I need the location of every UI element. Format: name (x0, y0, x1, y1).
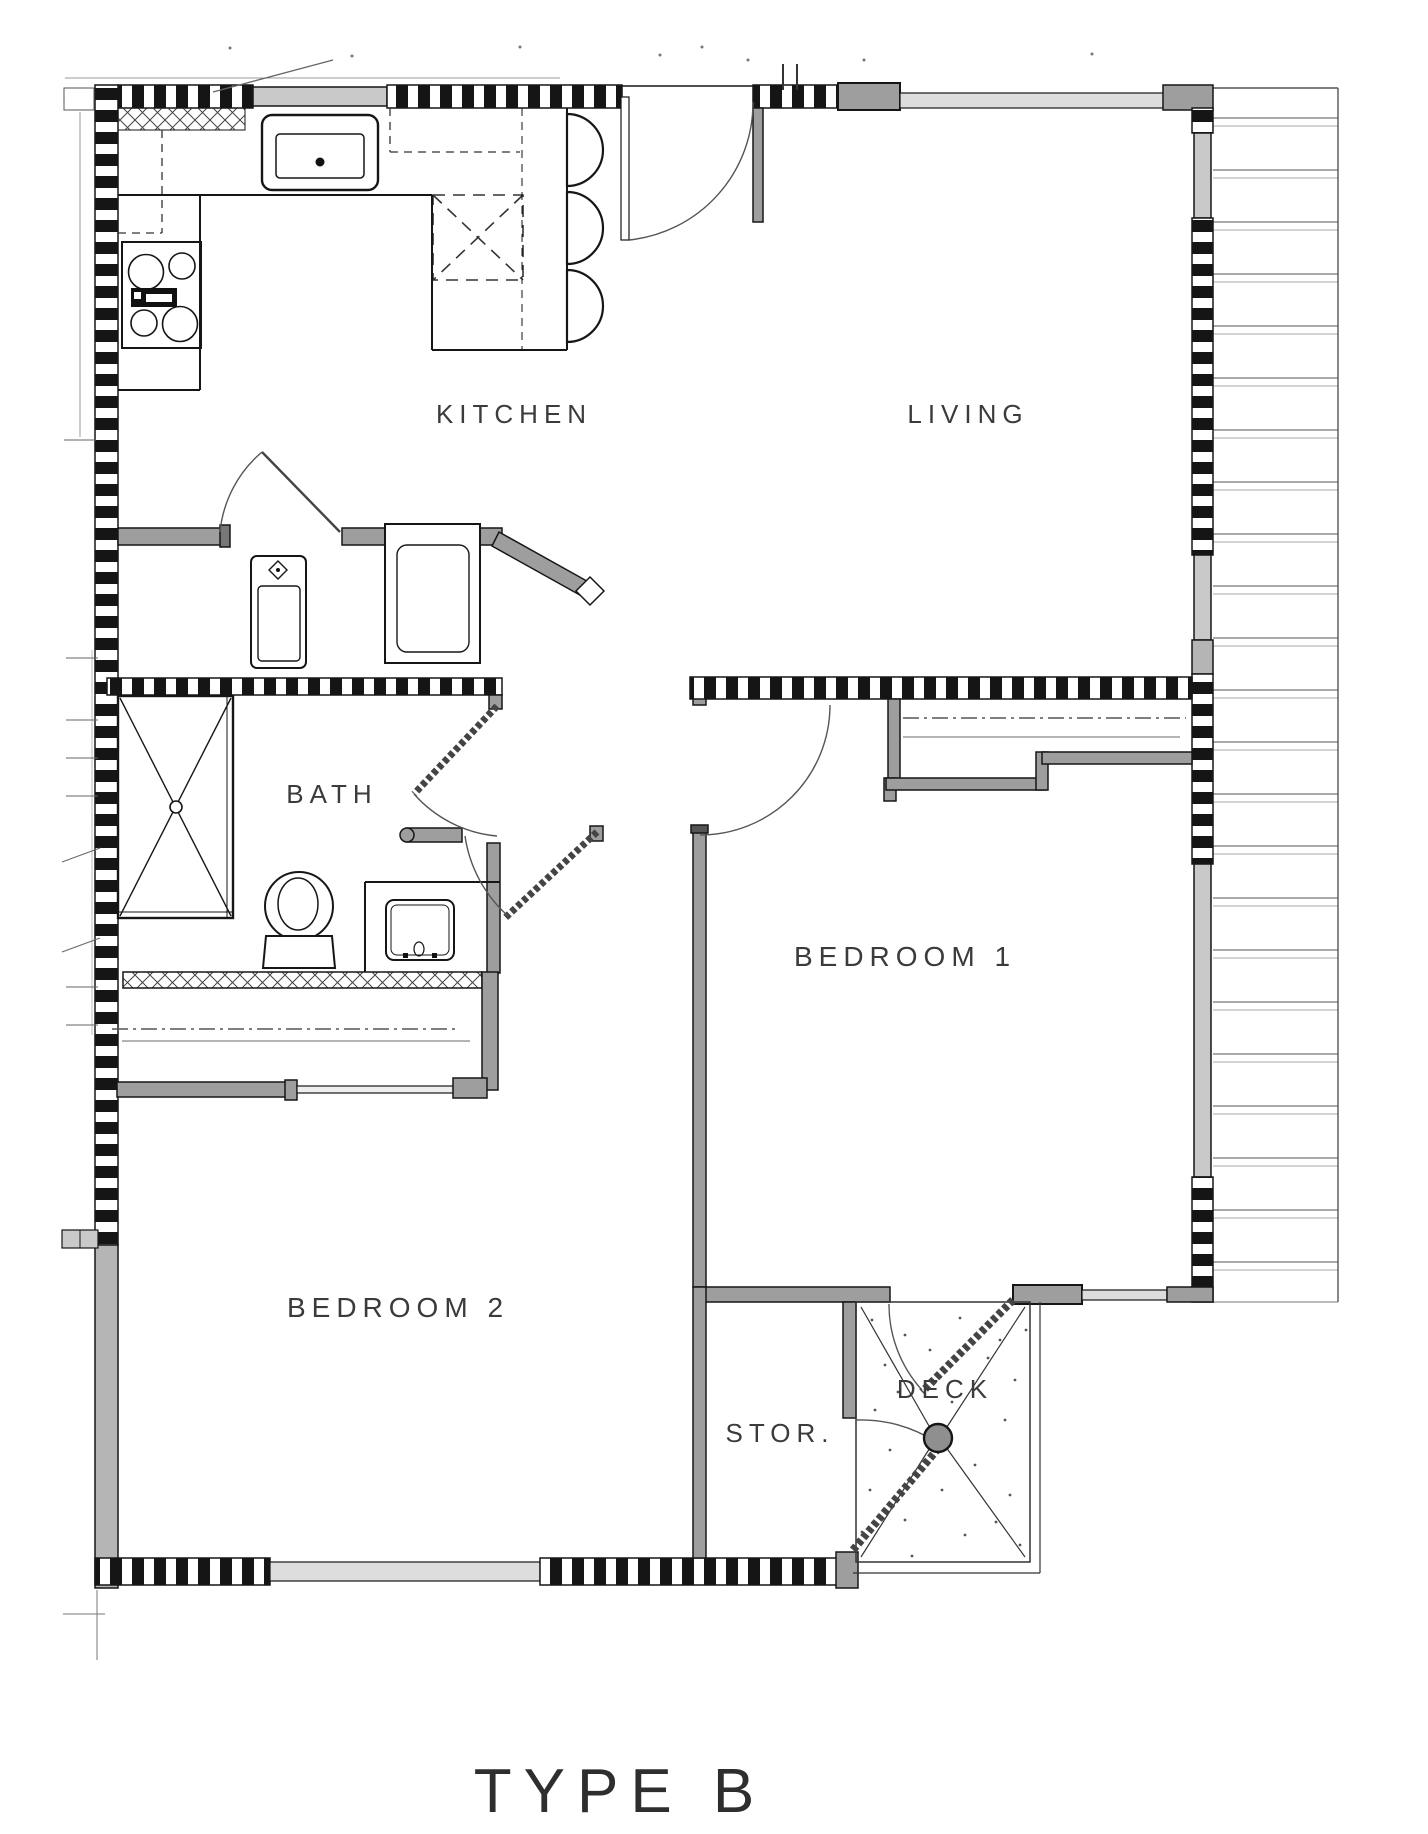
shower-icon (118, 696, 233, 918)
range-cooktop-icon (122, 242, 201, 348)
closet-rods (112, 718, 1186, 1041)
deck-structure (853, 1300, 1040, 1573)
room-label-deck: DECK (897, 1374, 993, 1404)
bedroom1-door (700, 705, 830, 835)
floor-plan-sheet: KITCHEN LIVING BATH BEDROOM 1 BEDROOM 2 … (0, 0, 1428, 1834)
toilet-icon (263, 872, 335, 968)
plan-title: TYPE B (474, 1757, 767, 1826)
kitchen-sink-icon (262, 115, 378, 190)
room-label-living: LIVING (907, 399, 1028, 429)
room-label-bedroom1: BEDROOM 1 (794, 941, 1016, 972)
bath-door (414, 706, 497, 836)
room-label-kitchen: KITCHEN (436, 399, 592, 429)
room-label-bath: BATH (286, 779, 377, 809)
entry-door (621, 97, 753, 240)
utility-sink-icon (251, 556, 306, 668)
room-label-bedroom2: BEDROOM 2 (287, 1292, 509, 1323)
floor-plan-drawing: KITCHEN LIVING BATH BEDROOM 1 BEDROOM 2 … (0, 0, 1428, 1834)
stipple-dots-top (229, 46, 1094, 62)
kitchen-hall-door (220, 452, 340, 532)
deck-post-icon (924, 1424, 952, 1452)
island-counter (432, 108, 567, 350)
kitchen-fixtures (118, 108, 603, 390)
vanity-sink-icon (365, 882, 500, 972)
right-siding-region (1213, 88, 1338, 1302)
room-label-storage: STOR. (726, 1418, 835, 1448)
refrigerator-dashed (433, 195, 523, 280)
washer-icon (385, 524, 480, 663)
bar-stools (567, 114, 603, 342)
bedroom2-door (465, 832, 597, 918)
